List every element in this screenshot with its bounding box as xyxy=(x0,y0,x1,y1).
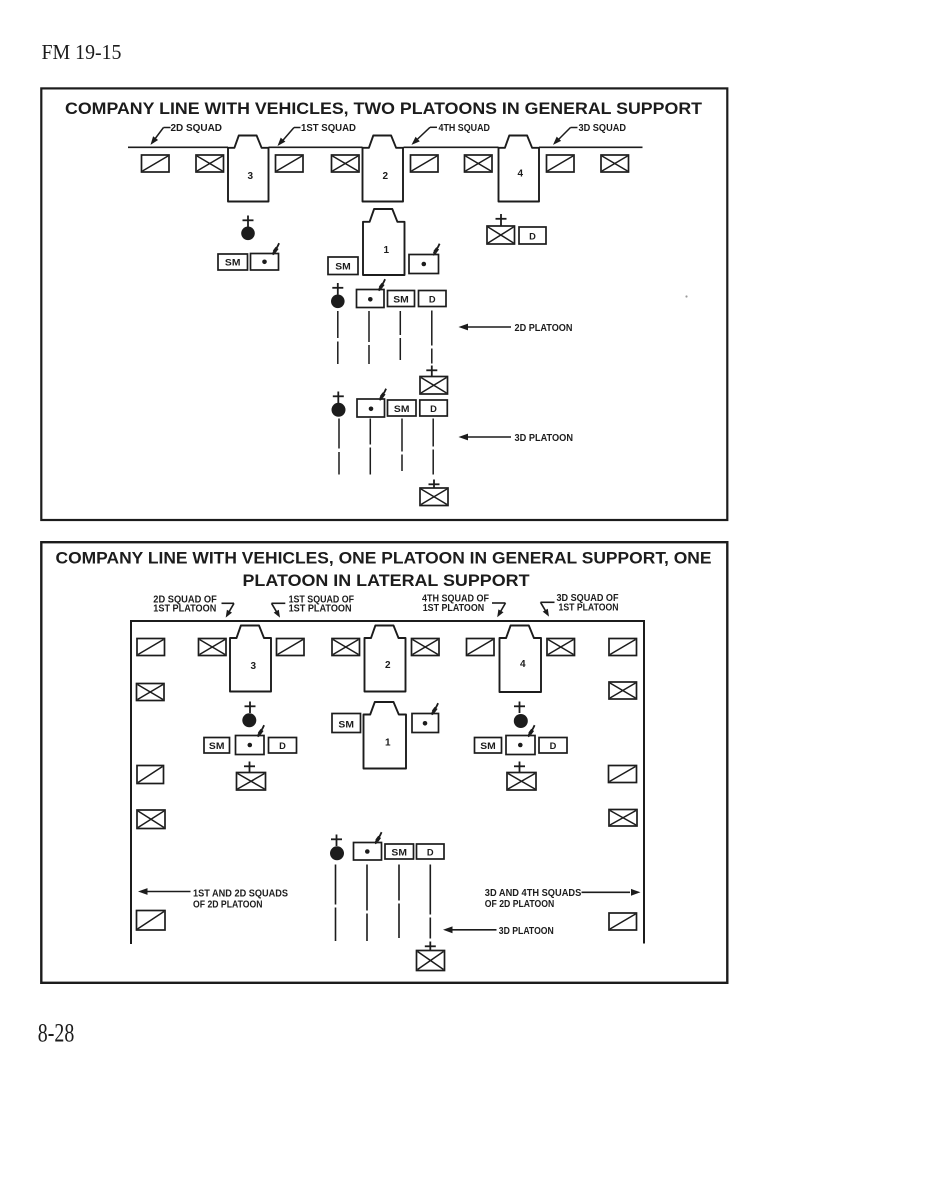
svg-text:D: D xyxy=(550,741,557,751)
svg-text:3D PLATOON: 3D PLATOON xyxy=(515,433,574,444)
svg-text:1ST PLATOON: 1ST PLATOON xyxy=(423,603,485,614)
svg-text:1ST SQUAD: 1ST SQUAD xyxy=(301,123,356,134)
svg-text:2D PLATOON: 2D PLATOON xyxy=(515,323,573,334)
svg-text:OF 2D PLATOON: OF 2D PLATOON xyxy=(485,899,555,910)
svg-text:1ST PLATOON: 1ST PLATOON xyxy=(153,604,216,615)
svg-text:1: 1 xyxy=(385,738,391,749)
svg-text:8-28: 8-28 xyxy=(38,1018,75,1047)
svg-text:2: 2 xyxy=(385,660,391,671)
svg-text:1ST AND 2D SQUADS: 1ST AND 2D SQUADS xyxy=(193,888,288,899)
svg-text:D: D xyxy=(429,294,436,304)
svg-text:D: D xyxy=(430,404,437,414)
svg-text:1ST PLATOON: 1ST PLATOON xyxy=(289,604,352,615)
svg-text:3D AND 4TH SQUADS: 3D AND 4TH SQUADS xyxy=(485,888,582,899)
svg-text:SM: SM xyxy=(391,847,407,857)
svg-text:SM: SM xyxy=(209,741,225,751)
svg-text:1: 1 xyxy=(384,245,390,256)
svg-text:3D SQUAD: 3D SQUAD xyxy=(579,123,627,134)
svg-text:2: 2 xyxy=(383,171,389,182)
svg-text:PLATOON IN LATERAL SUPPORT: PLATOON IN LATERAL SUPPORT xyxy=(243,571,530,590)
svg-text:SM: SM xyxy=(480,741,496,751)
svg-text:FM 19-15: FM 19-15 xyxy=(42,40,122,64)
svg-text:SM: SM xyxy=(335,261,351,271)
svg-text:4: 4 xyxy=(518,169,524,180)
svg-text:OF 2D PLATOON: OF 2D PLATOON xyxy=(193,899,263,910)
svg-text:3: 3 xyxy=(248,171,254,182)
svg-text:SM: SM xyxy=(394,404,410,414)
svg-text:4TH SQUAD: 4TH SQUAD xyxy=(439,123,491,134)
svg-text:1ST PLATOON: 1ST PLATOON xyxy=(559,602,619,613)
svg-text:COMPANY LINE WITH VEHICLES, ON: COMPANY LINE WITH VEHICLES, ONE PLATOON … xyxy=(56,549,712,568)
svg-text:D: D xyxy=(529,231,536,241)
svg-text:COMPANY LINE WITH VEHICLES, TW: COMPANY LINE WITH VEHICLES, TWO PLATOONS… xyxy=(65,99,702,118)
svg-text:D: D xyxy=(427,847,434,857)
svg-text:SM: SM xyxy=(225,257,241,267)
svg-text:4: 4 xyxy=(520,659,526,670)
svg-text:3D PLATOON: 3D PLATOON xyxy=(499,926,554,937)
svg-text:3: 3 xyxy=(251,661,257,672)
svg-text:SM: SM xyxy=(338,719,354,729)
svg-text:2D SQUAD: 2D SQUAD xyxy=(171,123,223,134)
svg-text:SM: SM xyxy=(393,294,409,304)
svg-text:D: D xyxy=(279,741,286,751)
